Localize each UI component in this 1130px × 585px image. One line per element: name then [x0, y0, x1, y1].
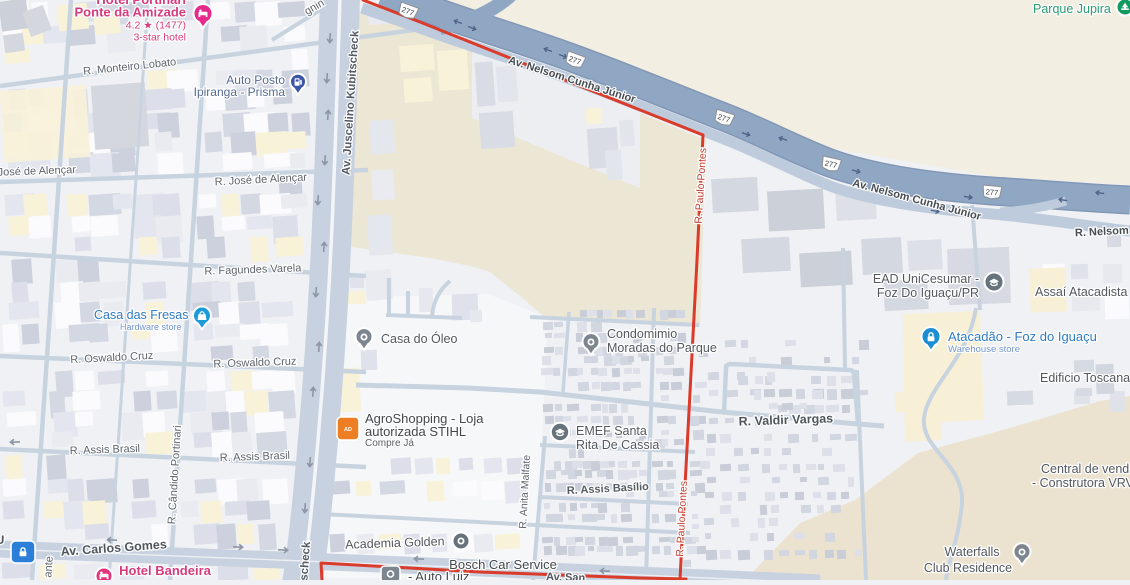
svg-text:Central de venda: Central de venda	[1041, 462, 1130, 476]
svg-text:Waterfalls: Waterfalls	[944, 545, 999, 559]
svg-text:Hotel Bandeira: Hotel Bandeira	[119, 563, 212, 578]
svg-text:Club Residence: Club Residence	[924, 561, 1012, 575]
svg-text:AD: AD	[344, 427, 352, 433]
svg-text:- Auto Luiz: - Auto Luiz	[408, 569, 469, 580]
svg-text:ante: ante	[42, 556, 55, 578]
svg-text:Moradas do Parque: Moradas do Parque	[607, 341, 717, 355]
svg-text:Hardware store: Hardware store	[120, 322, 182, 332]
svg-text:Ponte da Amizade: Ponte da Amizade	[75, 5, 186, 20]
svg-text:Warehouse store: Warehouse store	[948, 344, 1020, 355]
svg-text:R. Assis Brasil: R. Assis Brasil	[220, 450, 291, 464]
svg-text:Atacadão - Foz do Iguaçu: Atacadão - Foz do Iguaçu	[948, 329, 1097, 344]
svg-text:Foz Do Iguaçu/PR: Foz Do Iguaçu/PR	[877, 286, 979, 300]
svg-text:Condomimio: Condomimio	[607, 327, 677, 341]
svg-text:Assaí Atacadista: Assaí Atacadista	[1035, 285, 1127, 299]
svg-text:Ipiranga - Prisma: Ipiranga - Prisma	[194, 85, 286, 99]
svg-text:4.2 ★ (1477): 4.2 ★ (1477)	[126, 20, 186, 32]
svg-text:autorizada STIHL: autorizada STIHL	[365, 424, 466, 439]
svg-text:Parque Jupira: Parque Jupira	[1033, 2, 1111, 16]
svg-text:Rita De Cassia: Rita De Cassia	[576, 438, 659, 452]
svg-text:Edificio Toscana: Edificio Toscana	[1040, 371, 1130, 385]
svg-text:EAD UniCesumar -: EAD UniCesumar -	[873, 272, 979, 286]
svg-text:R. Assis Brasil: R. Assis Brasil	[70, 443, 141, 457]
svg-text:- Construtora VRV: - Construtora VRV	[1032, 476, 1130, 490]
svg-text:Compre Já: Compre Já	[365, 438, 414, 449]
svg-text:Casa do Óleo: Casa do Óleo	[381, 331, 457, 346]
svg-text:EMEF Santa: EMEF Santa	[576, 424, 647, 438]
svg-text:277: 277	[985, 187, 998, 197]
svg-text:3-star hotel: 3-star hotel	[133, 32, 186, 44]
svg-text:U: U	[0, 533, 4, 547]
svg-text:Casa das Fresas: Casa das Fresas	[94, 308, 188, 322]
svg-text:Av. San: Av. San	[546, 571, 586, 580]
